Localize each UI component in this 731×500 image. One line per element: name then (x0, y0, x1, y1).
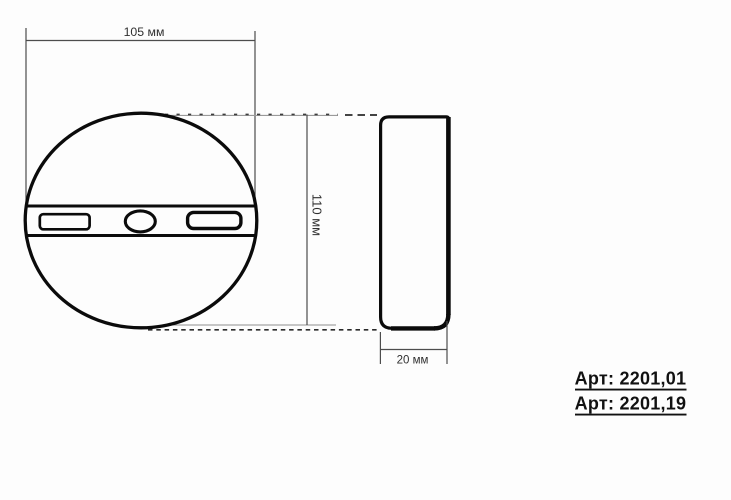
svg-text:Арт: 2201,01: Арт: 2201,01 (575, 369, 687, 389)
svg-text:105 мм: 105 мм (124, 25, 165, 39)
svg-text:Арт: 2201,19: Арт: 2201,19 (575, 394, 687, 414)
svg-text:110 мм: 110 мм (309, 194, 324, 236)
svg-text:20 мм: 20 мм (397, 355, 429, 367)
